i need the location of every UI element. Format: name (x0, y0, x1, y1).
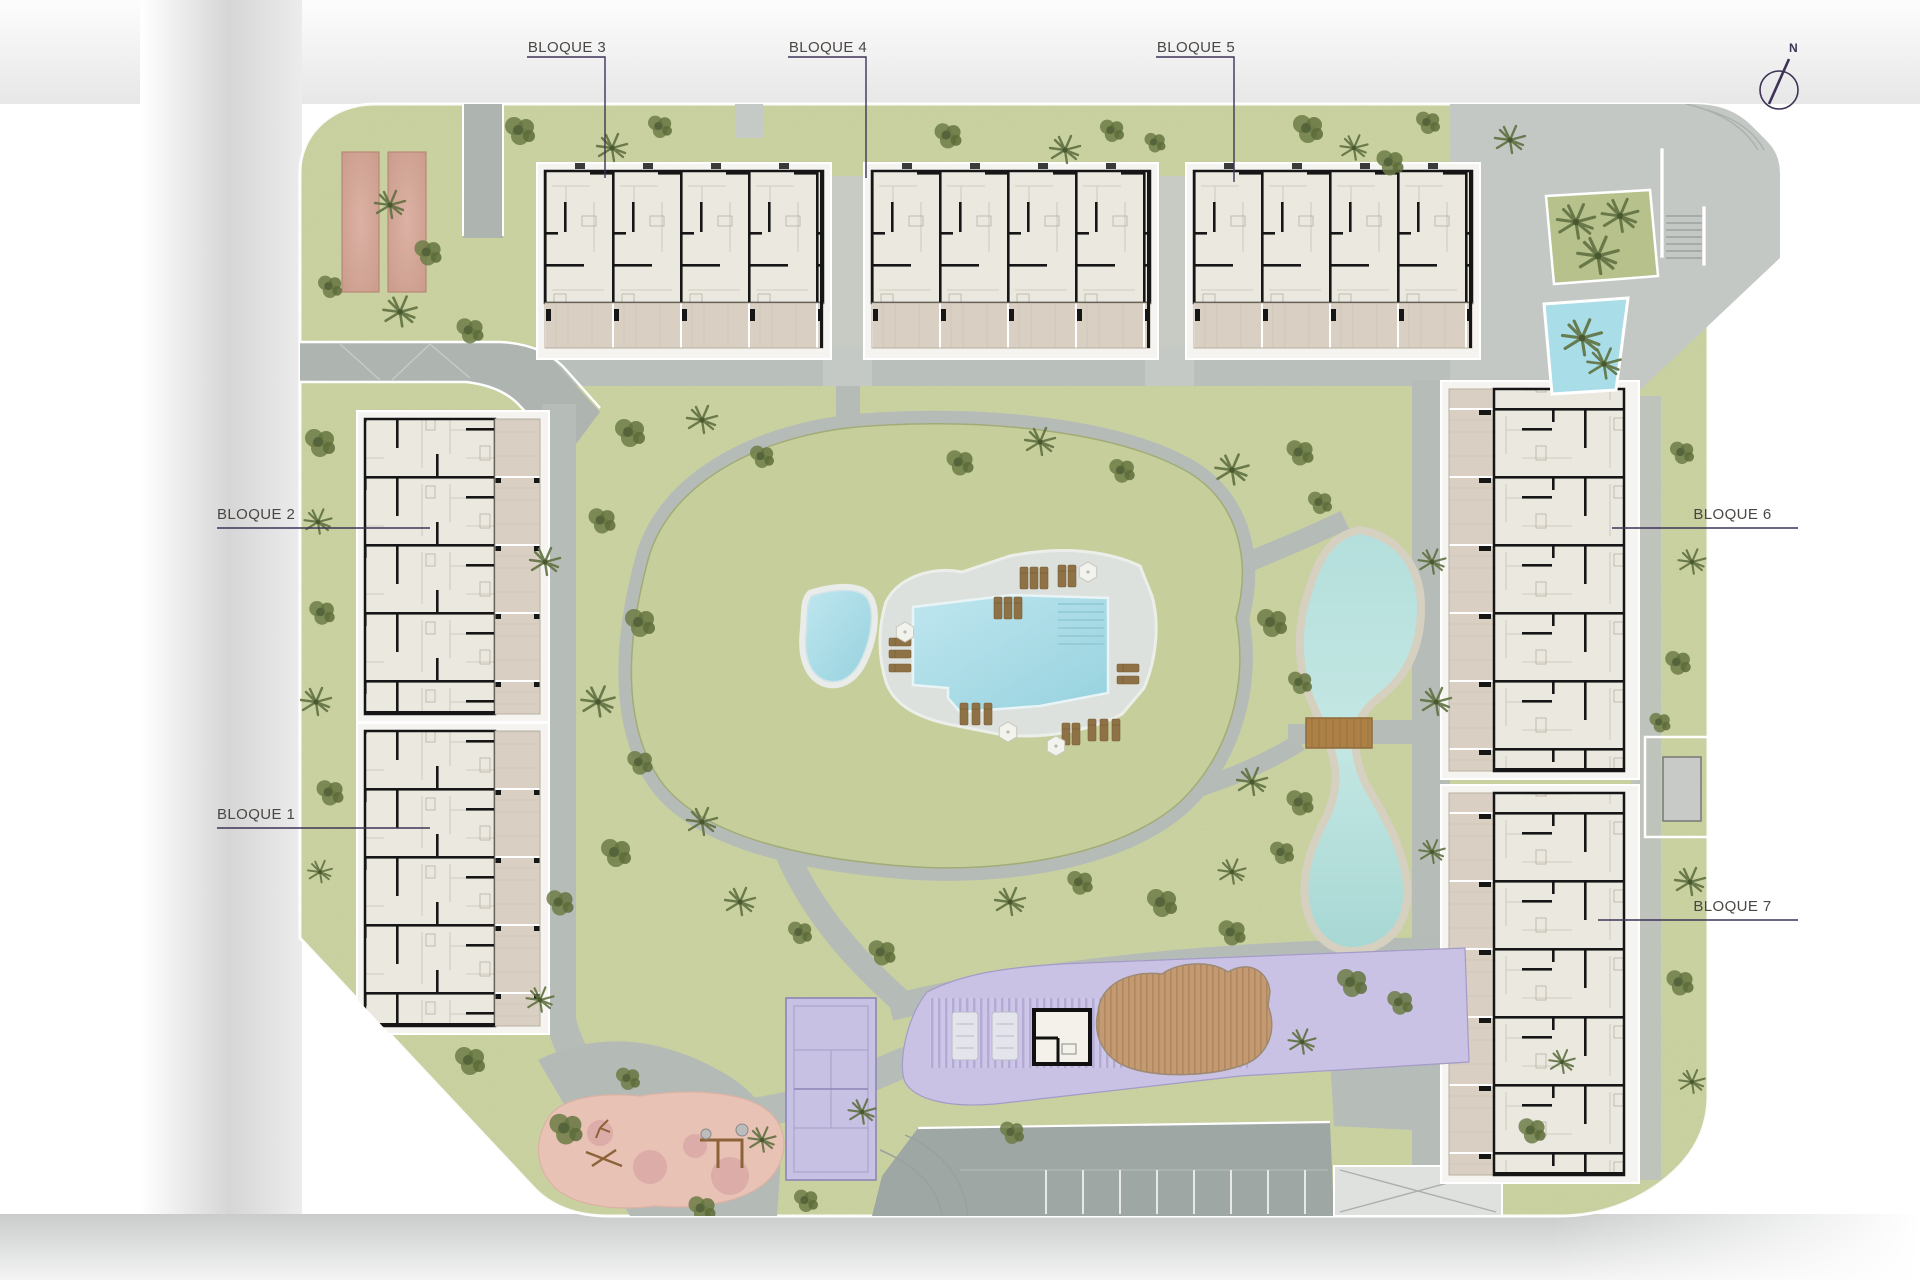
road-top-left (463, 104, 503, 238)
building-bloque-3 (537, 163, 831, 359)
north-label: N (1789, 42, 1798, 54)
pool-kids (806, 590, 872, 681)
corner-pool (1544, 298, 1628, 394)
parking-lot (872, 1122, 1334, 1216)
building-bloque-2 (357, 411, 549, 722)
label-bloque-7: BLOQUE 7 (1670, 899, 1795, 914)
building-bloque-6 (1441, 381, 1639, 779)
planter-square (1546, 190, 1658, 284)
label-bloque-2: BLOQUE 2 (217, 507, 295, 522)
site-plan-page: BLOQUE 3 BLOQUE 4 BLOQUE 5 BLOQUE 2 BLOQ… (0, 0, 1920, 1280)
wood-deck (1097, 964, 1272, 1075)
building-bloque-1 (357, 723, 549, 1034)
playground (539, 1092, 784, 1208)
label-bloque-3: BLOQUE 3 (517, 40, 617, 55)
pool-area (631, 424, 1242, 868)
label-bloque-4: BLOQUE 4 (778, 40, 878, 55)
building-bloque-5 (1186, 163, 1480, 359)
lake-bridge (1306, 718, 1372, 748)
site-plan-drawing (0, 0, 1920, 1280)
offsite-left-wash (140, 0, 302, 1280)
paddle-court (786, 998, 876, 1180)
label-bloque-5: BLOQUE 5 (1146, 40, 1246, 55)
building-bloque-4 (864, 163, 1158, 359)
label-bloque-6: BLOQUE 6 (1670, 507, 1795, 522)
offsite-bottom-fade (1550, 1214, 1920, 1280)
label-bloque-1: BLOQUE 1 (217, 807, 295, 822)
club-building (1034, 1010, 1090, 1064)
